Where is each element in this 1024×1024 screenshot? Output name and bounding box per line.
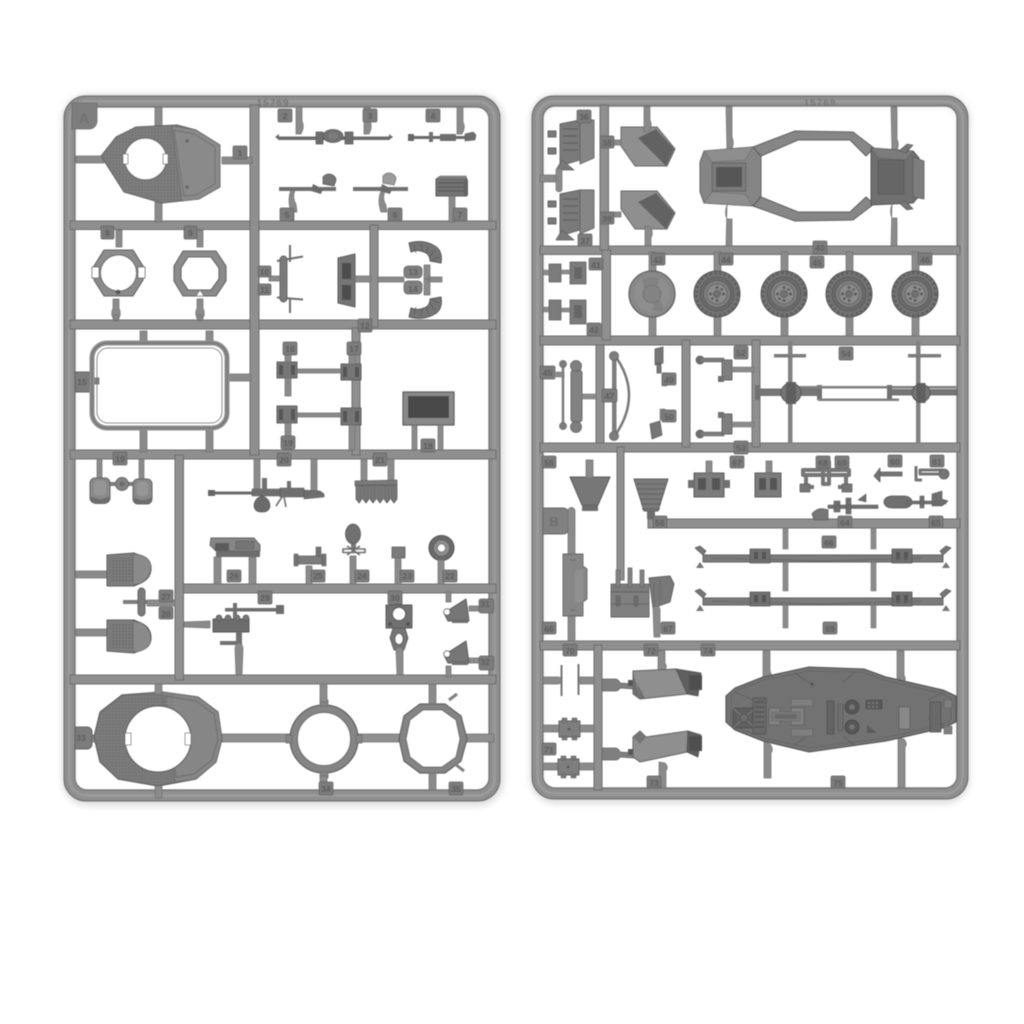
svg-text:39: 39 bbox=[602, 214, 612, 224]
svg-text:56: 56 bbox=[655, 518, 665, 528]
svg-text:28: 28 bbox=[161, 609, 171, 619]
svg-text:64: 64 bbox=[840, 518, 850, 528]
svg-text:69: 69 bbox=[837, 458, 847, 468]
svg-text:49: 49 bbox=[664, 375, 674, 385]
svg-text:30: 30 bbox=[390, 593, 400, 603]
svg-text:19: 19 bbox=[115, 454, 125, 464]
svg-text:50: 50 bbox=[664, 412, 674, 422]
svg-text:53: 53 bbox=[736, 443, 746, 453]
svg-text:15769: 15769 bbox=[804, 98, 837, 109]
svg-text:70: 70 bbox=[565, 646, 575, 656]
svg-text:61: 61 bbox=[932, 457, 942, 467]
svg-text:31: 31 bbox=[480, 599, 490, 609]
svg-text:41: 41 bbox=[591, 260, 601, 270]
svg-text:44: 44 bbox=[721, 255, 731, 265]
svg-text:42: 42 bbox=[589, 325, 599, 335]
svg-text:22: 22 bbox=[445, 571, 455, 581]
svg-text:15769: 15769 bbox=[257, 98, 290, 109]
svg-text:14: 14 bbox=[408, 284, 418, 294]
svg-text:6: 6 bbox=[393, 210, 398, 220]
svg-text:38: 38 bbox=[602, 138, 612, 148]
svg-text:67: 67 bbox=[732, 458, 742, 468]
svg-text:45: 45 bbox=[543, 368, 553, 378]
svg-text:60: 60 bbox=[890, 457, 900, 467]
svg-text:5: 5 bbox=[285, 210, 290, 220]
svg-text:35: 35 bbox=[451, 784, 461, 794]
svg-text:34: 34 bbox=[321, 784, 331, 794]
svg-text:2: 2 bbox=[283, 111, 288, 121]
svg-text:12: 12 bbox=[360, 321, 370, 331]
svg-text:75: 75 bbox=[833, 778, 843, 788]
svg-text:20: 20 bbox=[279, 455, 289, 465]
svg-text:1: 1 bbox=[238, 148, 243, 158]
svg-text:47: 47 bbox=[605, 391, 615, 401]
svg-text:16: 16 bbox=[285, 344, 295, 354]
svg-text:7: 7 bbox=[458, 210, 463, 220]
svg-text:17: 17 bbox=[349, 344, 359, 354]
svg-text:24: 24 bbox=[357, 571, 367, 581]
svg-text:37: 37 bbox=[580, 236, 590, 246]
svg-text:67: 67 bbox=[663, 624, 673, 634]
svg-text:15: 15 bbox=[77, 377, 87, 387]
svg-text:13: 13 bbox=[408, 267, 418, 277]
svg-text:19: 19 bbox=[283, 438, 293, 448]
svg-text:36: 36 bbox=[579, 112, 589, 122]
svg-text:69: 69 bbox=[825, 624, 835, 634]
svg-text:55: 55 bbox=[544, 458, 554, 468]
svg-text:29: 29 bbox=[260, 593, 270, 603]
svg-text:A: A bbox=[79, 110, 89, 126]
svg-text:33: 33 bbox=[76, 733, 86, 743]
svg-text:21: 21 bbox=[375, 455, 385, 465]
svg-text:46: 46 bbox=[920, 255, 930, 265]
svg-text:4: 4 bbox=[431, 111, 436, 121]
svg-text:3: 3 bbox=[368, 111, 373, 121]
svg-text:18: 18 bbox=[423, 441, 433, 451]
svg-text:8: 8 bbox=[105, 228, 110, 238]
svg-text:72: 72 bbox=[646, 646, 656, 656]
svg-text:52: 52 bbox=[736, 348, 746, 358]
svg-text:71: 71 bbox=[544, 745, 554, 755]
svg-text:54: 54 bbox=[841, 349, 851, 359]
svg-text:45: 45 bbox=[812, 258, 822, 268]
svg-text:26: 26 bbox=[229, 571, 239, 581]
svg-text:73: 73 bbox=[649, 778, 659, 788]
svg-text:9: 9 bbox=[188, 228, 193, 238]
svg-text:25: 25 bbox=[313, 571, 323, 581]
svg-text:66: 66 bbox=[544, 624, 554, 634]
svg-text:40: 40 bbox=[815, 243, 825, 253]
svg-text:43: 43 bbox=[653, 255, 663, 265]
svg-text:10: 10 bbox=[260, 267, 270, 277]
svg-text:11: 11 bbox=[260, 285, 269, 295]
svg-text:65: 65 bbox=[931, 518, 941, 528]
svg-text:23: 23 bbox=[402, 571, 412, 581]
svg-text:66: 66 bbox=[824, 538, 834, 548]
svg-text:32: 32 bbox=[480, 657, 490, 667]
svg-text:27: 27 bbox=[161, 592, 171, 602]
svg-text:74: 74 bbox=[703, 646, 713, 656]
svg-text:B: B bbox=[549, 514, 558, 529]
svg-text:68: 68 bbox=[818, 458, 828, 468]
